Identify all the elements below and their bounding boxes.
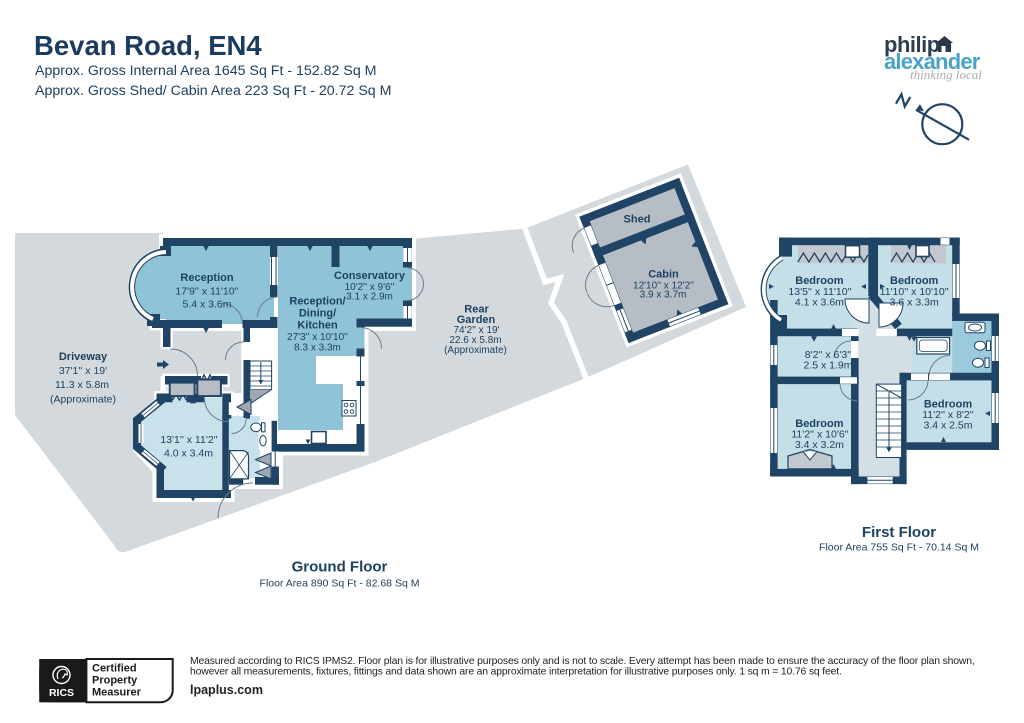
svg-text:Ground Floor: Ground Floor bbox=[292, 559, 388, 576]
svg-text:13'1'' x 11'2'': 13'1'' x 11'2'' bbox=[160, 434, 217, 446]
svg-text:Approx. Gross Shed/ Cabin Area: Approx. Gross Shed/ Cabin Area 223 Sq Ft… bbox=[35, 83, 391, 99]
svg-text:Floor Area 890 Sq Ft - 82.68 S: Floor Area 890 Sq Ft - 82.68 Sq M bbox=[260, 578, 420, 590]
svg-text:thinking local: thinking local bbox=[910, 67, 982, 82]
svg-text:Floor Area 755 Sq Ft - 70.14 S: Floor Area 755 Sq Ft - 70.14 Sq M bbox=[819, 542, 979, 554]
svg-text:5.4 x 3.6m: 5.4 x 3.6m bbox=[182, 299, 231, 311]
svg-text:17'9'' x 11'10'': 17'9'' x 11'10'' bbox=[175, 286, 238, 298]
svg-text:Shed: Shed bbox=[624, 214, 651, 226]
svg-text:RICS: RICS bbox=[49, 687, 74, 699]
svg-text:Property: Property bbox=[92, 675, 138, 687]
svg-text:Measured according to RICS IPM: Measured according to RICS IPMS2. Floor … bbox=[190, 656, 975, 667]
svg-text:3.9 x 3.7m: 3.9 x 3.7m bbox=[640, 290, 687, 301]
svg-text:Conservatory: Conservatory bbox=[334, 270, 406, 282]
svg-text:2.5 x 1.9m: 2.5 x 1.9m bbox=[803, 360, 852, 372]
svg-text:Bevan Road, EN4: Bevan Road, EN4 bbox=[34, 30, 262, 61]
svg-text:(Approximate): (Approximate) bbox=[50, 394, 116, 406]
svg-text:Certified: Certified bbox=[92, 663, 137, 675]
svg-text:Driveway: Driveway bbox=[59, 351, 108, 363]
svg-text:Measurer: Measurer bbox=[92, 687, 142, 699]
svg-text:27'3'' x 10'10'': 27'3'' x 10'10'' bbox=[287, 332, 348, 343]
svg-text:Reception/: Reception/ bbox=[289, 296, 345, 308]
svg-text:4.0 x 3.4m: 4.0 x 3.4m bbox=[164, 448, 213, 460]
svg-text:3.4 x 3.2m: 3.4 x 3.2m bbox=[795, 439, 844, 451]
svg-text:(Approximate): (Approximate) bbox=[444, 345, 507, 356]
svg-text:however all measurements, fixt: however all measurements, fixtures, fitt… bbox=[190, 667, 842, 678]
svg-text:lpaplus.com: lpaplus.com bbox=[190, 683, 263, 697]
svg-text:37'1'' x 19': 37'1'' x 19' bbox=[59, 365, 107, 377]
svg-text:4.1 x 3.6m: 4.1 x 3.6m bbox=[795, 297, 844, 309]
svg-text:8.3 x 3.3m: 8.3 x 3.3m bbox=[294, 343, 341, 354]
svg-text:Cabin: Cabin bbox=[648, 269, 679, 281]
svg-text:Dining/: Dining/ bbox=[299, 308, 336, 320]
svg-text:First Floor: First Floor bbox=[862, 524, 936, 541]
svg-text:Approx. Gross Internal Area 16: Approx. Gross Internal Area 1645 Sq Ft -… bbox=[35, 63, 376, 79]
svg-text:3.6 x 3.3m: 3.6 x 3.3m bbox=[890, 297, 939, 309]
svg-text:Reception: Reception bbox=[180, 272, 233, 284]
svg-text:11.3 x 5.8m: 11.3 x 5.8m bbox=[55, 379, 109, 391]
svg-text:Kitchen: Kitchen bbox=[297, 320, 338, 332]
svg-text:3.1 x 2.9m: 3.1 x 2.9m bbox=[346, 292, 393, 303]
svg-text:3.4 x 2.5m: 3.4 x 2.5m bbox=[923, 420, 972, 432]
